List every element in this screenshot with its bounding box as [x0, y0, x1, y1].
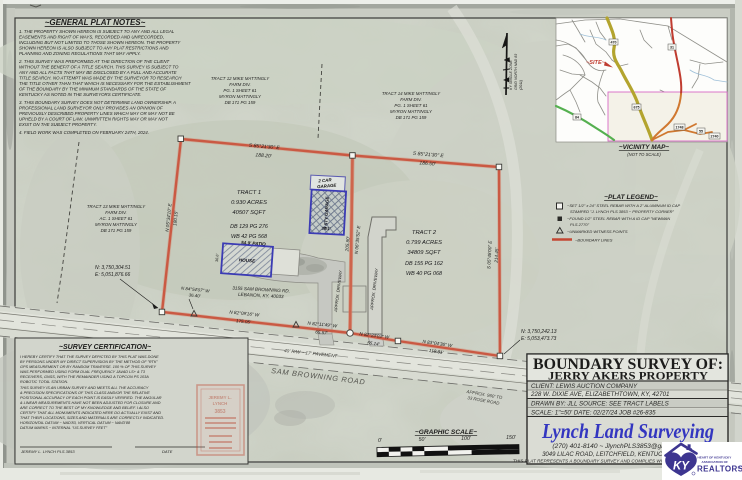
svg-text:DB 155 PG 162: DB 155 PG 162: [405, 261, 443, 267]
svg-text:DB 129 PG 276: DB 129 PG 276: [230, 224, 268, 230]
svg-text:55: 55: [699, 130, 703, 134]
svg-text:Lynch Land Surveying: Lynch Land Surveying: [541, 419, 714, 443]
svg-text:ASSOCIATION OF: ASSOCIATION OF: [702, 460, 729, 464]
svg-text:(2011): (2011): [519, 80, 523, 90]
svg-text:~VICINITY MAP~: ~VICINITY MAP~: [619, 144, 670, 151]
svg-text:CLIENT: LEWIS AUCTION COMPANY: CLIENT: LEWIS AUCTION COMPANY: [531, 383, 638, 390]
svg-text:TRACT 14 MIKE MATTINGLY: TRACT 14 MIKE MATTINGLY: [382, 91, 441, 96]
svg-text:E: 5,053,473.73: E: 5,053,473.73: [521, 336, 557, 342]
svg-text:4. FIELD WORK WAS COMPLETED ON: 4. FIELD WORK WAS COMPLETED ON FEBRUARY …: [19, 130, 149, 135]
svg-text:TITLE SEARCH. NO ATTEMPT WAS M: TITLE SEARCH. NO ATTEMPT WAS MADE BY THE…: [19, 76, 182, 81]
svg-text:228 W. DIXIE AVE, ELIZABETHTOW: 228 W. DIXIE AVE, ELIZABETHTOWN, KY, 427…: [530, 391, 669, 398]
svg-text:THIS SURVEY IS AN URBAN SURVEY: THIS SURVEY IS AN URBAN SURVEY AND MEETS…: [20, 386, 149, 390]
svg-text:FARM DIV.: FARM DIV.: [229, 82, 251, 87]
svg-text:40507 SQFT: 40507 SQFT: [232, 210, 266, 216]
svg-text:BY PERSONS UNDER MY DIRECT SUP: BY PERSONS UNDER MY DIRECT SUPERVISION B…: [20, 360, 158, 364]
svg-text:JEREMY L. LYNCH PLS 3853: JEREMY L. LYNCH PLS 3853: [20, 449, 75, 454]
svg-text:(NOT TO SCALE): (NOT TO SCALE): [627, 152, 661, 157]
svg-text:1. THE PROPERTY SHOWN HEREON I: 1. THE PROPERTY SHOWN HEREON IS SUBJECT …: [19, 29, 175, 34]
svg-text:150': 150': [506, 435, 517, 441]
svg-text:DB 171 PG 159: DB 171 PG 159: [225, 100, 256, 105]
svg-text:TRACT 1: TRACT 1: [237, 190, 261, 196]
svg-text:WAS PERFORMED USING FORM DUAL: WAS PERFORMED USING FORM DUAL FREQUENCY …: [20, 370, 146, 374]
svg-text:LYNCH: LYNCH: [213, 401, 228, 406]
svg-text:REALTORS: REALTORS: [697, 465, 742, 474]
svg-text:STAMPED "J. LYNCH PLS 3853 ~ P: STAMPED "J. LYNCH PLS 3853 ~ PROPERTY CO…: [570, 209, 675, 214]
svg-text:~SET 1/2" x 24" STEEL REBAR WI: ~SET 1/2" x 24" STEEL REBAR WITH A 2" AL…: [567, 203, 681, 208]
svg-text:MYRON MATTINGLY: MYRON MATTINGLY: [219, 94, 262, 99]
svg-text:KY SINGLE ZONE: KY SINGLE ZONE: [509, 60, 513, 90]
svg-text:0.930 ACRES: 0.930 ACRES: [231, 200, 267, 206]
svg-text:TRACT 13 MIKE MATTINGLY: TRACT 13 MIKE MATTINGLY: [87, 204, 146, 209]
svg-text:470: 470: [611, 41, 617, 45]
svg-text:DRAWN BY: JLL SOURCE: SEE T: DRAWN BY: JLL SOURCE: SEE TRACT LABELS: [531, 401, 670, 408]
svg-text:~SITE~: ~SITE~: [586, 60, 606, 66]
svg-text:~GRAPHIC SCALE~: ~GRAPHIC SCALE~: [415, 429, 477, 436]
svg-text:DB 171 PG 159: DB 171 PG 159: [101, 228, 132, 233]
svg-text:FARM DIV.: FARM DIV.: [400, 97, 422, 102]
svg-text:84: 84: [575, 116, 579, 120]
svg-text:UPHELD BY A COURT OF LAW. UNWR: UPHELD BY A COURT OF LAW. UNWRITTEN RIGH…: [19, 117, 168, 122]
svg-text:PREVIOUSLY DESCRIBED PROPERTY: PREVIOUSLY DESCRIBED PROPERTY LINES WHIC…: [19, 111, 175, 116]
svg-text:ROBOTIC TOTAL STATION.: ROBOTIC TOTAL STATION.: [20, 380, 68, 384]
svg-text:N: 3,750,242.13: N: 3,750,242.13: [521, 329, 557, 335]
svg-text:TRACT 12 MIKE MATTINGLY: TRACT 12 MIKE MATTINGLY: [211, 76, 270, 81]
svg-text:31: 31: [670, 46, 674, 50]
svg-text:EASEMENTS AND RIGHT OF WAYS, R: EASEMENTS AND RIGHT OF WAYS, RECORDED AN…: [19, 35, 164, 40]
svg-text:3. THIS BOUNDARY SURVEY DOES N: 3. THIS BOUNDARY SURVEY DOES NOT DETERMI…: [19, 100, 176, 105]
svg-text:N: 3,750,304.51: N: 3,750,304.51: [95, 265, 131, 271]
svg-text:WB 40 PG 068: WB 40 PG 068: [406, 271, 442, 277]
svg-text:THAT THEIR LOCATIONS, SIZES AN: THAT THEIR LOCATIONS, SIZES AND MATERIAL…: [20, 416, 164, 420]
svg-text:DATE: DATE: [162, 449, 173, 454]
svg-text:MYRON MATTINGLY: MYRON MATTINGLY: [95, 222, 138, 227]
svg-text:ARE CORRECT TO THE BEST OF MY: ARE CORRECT TO THE BEST OF MY KNOWLEDGE …: [19, 406, 149, 410]
svg-text:JEREMY L.: JEREMY L.: [208, 395, 231, 400]
svg-text:DB 171 PG 159: DB 171 PG 159: [396, 115, 427, 120]
svg-text:EXIST ON THE SUBJECT PROPERTY.: EXIST ON THE SUBJECT PROPERTY.: [19, 122, 97, 127]
svg-text:& PRECISION SPECIFICATIONS OF: & PRECISION SPECIFICATIONS OF THIS CLASS…: [20, 391, 150, 395]
svg-text:675: 675: [634, 106, 640, 110]
svg-text:36.6': 36.6': [215, 253, 220, 262]
svg-text:PROFESSIONAL LAND SURVEYOR ONL: PROFESSIONAL LAND SURVEYOR ONLY PROVIDES…: [19, 106, 163, 111]
svg-text:50': 50': [419, 437, 427, 443]
svg-text:SCALE: 1"=50' DATE: 02/27/2: SCALE: 1"=50' DATE: 02/27/24 JOB #26-835: [531, 410, 656, 417]
svg-text:®: ®: [738, 466, 741, 470]
svg-text:HORIZONTAL DATUM ~ NAD'83, VER: HORIZONTAL DATUM ~ NAD'83, VERTICAL DATU…: [20, 421, 131, 425]
svg-text:SHOWN HEREON IS ALSO SUBJECT T: SHOWN HEREON IS ALSO SUBJECT TO ANY PLAT…: [19, 46, 169, 51]
svg-text:DATUM MARKS ~ INTERNAL "US SUR: DATUM MARKS ~ INTERNAL "US SURVEY FEET": [20, 426, 108, 430]
svg-text:2. THIS SURVEY WAS PREFORMED A: 2. THIS SURVEY WAS PREFORMED AT THE DIRE…: [18, 59, 170, 64]
svg-text:WITHOUT THE BENEFIT OF A TITLE: WITHOUT THE BENEFIT OF A TITLE SEARCH. T…: [19, 65, 179, 70]
svg-text:2740: 2740: [711, 135, 719, 139]
svg-text:& LINEAR MEASUREMENTS HAVE NOT: & LINEAR MEASUREMENTS HAVE NOT BEEN ADJU…: [20, 401, 161, 405]
svg-text:MYRON MATTINGLY: MYRON MATTINGLY: [390, 109, 433, 114]
svg-text:THE TITLE OTHER THAN THAT WHIC: THE TITLE OTHER THAN THAT WHICH IS NECES…: [19, 81, 191, 86]
svg-text:36.1': 36.1': [321, 226, 331, 232]
svg-text:PLS 2770": PLS 2770": [570, 222, 590, 227]
svg-text:PLANNING AND ZONING REGULATION: PLANNING AND ZONING REGULATIONS THAT MAY…: [19, 51, 141, 56]
svg-text:1748: 1748: [676, 126, 684, 130]
svg-text:E: 5,051,876.66: E: 5,051,876.66: [95, 272, 131, 278]
svg-text:3853: 3853: [214, 409, 225, 415]
svg-text:PG. 1 SHEET 61: PG. 1 SHEET 61: [394, 103, 428, 108]
svg-text:JERRY AKERS PROPERTY: JERRY AKERS PROPERTY: [548, 371, 709, 383]
svg-text:KY: KY: [673, 461, 690, 473]
svg-text:GPS MEASUREMENT OR BY RANDOM T: GPS MEASUREMENT OR BY RANDOM TRAVERSE. 1…: [20, 365, 157, 369]
svg-text:AC. 1 SHEET 61: AC. 1 SHEET 61: [99, 216, 134, 221]
svg-text:PG. 1 SHEET 61: PG. 1 SHEET 61: [223, 88, 257, 93]
svg-text:ANY AND ALL FACTS THAT MAY BE: ANY AND ALL FACTS THAT MAY BE DISCLOSED …: [18, 70, 177, 75]
svg-text:~PLAT LEGEND~: ~PLAT LEGEND~: [604, 194, 658, 201]
svg-text:KENTUCKY AS NOTED IN THE SURVE: KENTUCKY AS NOTED IN THE SURVEYORS CERTI…: [19, 92, 141, 97]
svg-text:0.799 ACRES: 0.799 ACRES: [406, 240, 442, 246]
svg-text:TRACT 2: TRACT 2: [412, 230, 437, 236]
svg-text:INCLUDING BUT NOT LIMITED TO T: INCLUDING BUT NOT LIMITED TO THOSE SHOWN…: [19, 40, 181, 45]
svg-text:I HEREBY CERTIFY THAT THE SURV: I HEREBY CERTIFY THAT THE SURVEY DEPICTE…: [20, 355, 159, 359]
svg-text:CERTIFY THAT ALL MONUMENTS IND: CERTIFY THAT ALL MONUMENTS INDICATED HER…: [20, 411, 161, 415]
svg-text:HEART OF KENTUCKY: HEART OF KENTUCKY: [698, 456, 733, 460]
svg-text:214.45': 214.45': [494, 247, 500, 263]
svg-text:~SURVEY CERTIFICATION~: ~SURVEY CERTIFICATION~: [59, 344, 151, 351]
svg-text:POSITIONAL ACCURACY OF EACH PO: POSITIONAL ACCURACY OF EACH POINT IS EAS…: [20, 396, 162, 400]
svg-text:~FOUND 1/2" STEEL REBAR WITH A: ~FOUND 1/2" STEEL REBAR WITH A ID CAP "N…: [567, 216, 670, 221]
svg-text:WB 42 PG 568: WB 42 PG 568: [231, 234, 267, 240]
svg-text:34809 SQFT: 34809 SQFT: [407, 250, 441, 256]
svg-text:100': 100': [461, 436, 472, 442]
svg-text:GRID NORTH NAD 83: GRID NORTH NAD 83: [514, 54, 518, 90]
svg-text:RECEIVERS, GNSS, WITH THE REMA: RECEIVERS, GNSS, WITH THE REMAINDER USIN…: [20, 375, 149, 379]
svg-text:FARM DIV.: FARM DIV.: [105, 210, 127, 215]
svg-text:~UNMARKED WITNESS POINTS: ~UNMARKED WITNESS POINTS: [567, 229, 628, 234]
svg-text:~GENERAL PLAT NOTES~: ~GENERAL PLAT NOTES~: [45, 18, 146, 27]
svg-text:~BOUNDARY LINES: ~BOUNDARY LINES: [575, 238, 613, 243]
svg-text:OF THE BOUNDARY BY THE MINIMUM: OF THE BOUNDARY BY THE MINIMUM STANDARDS…: [19, 87, 166, 92]
